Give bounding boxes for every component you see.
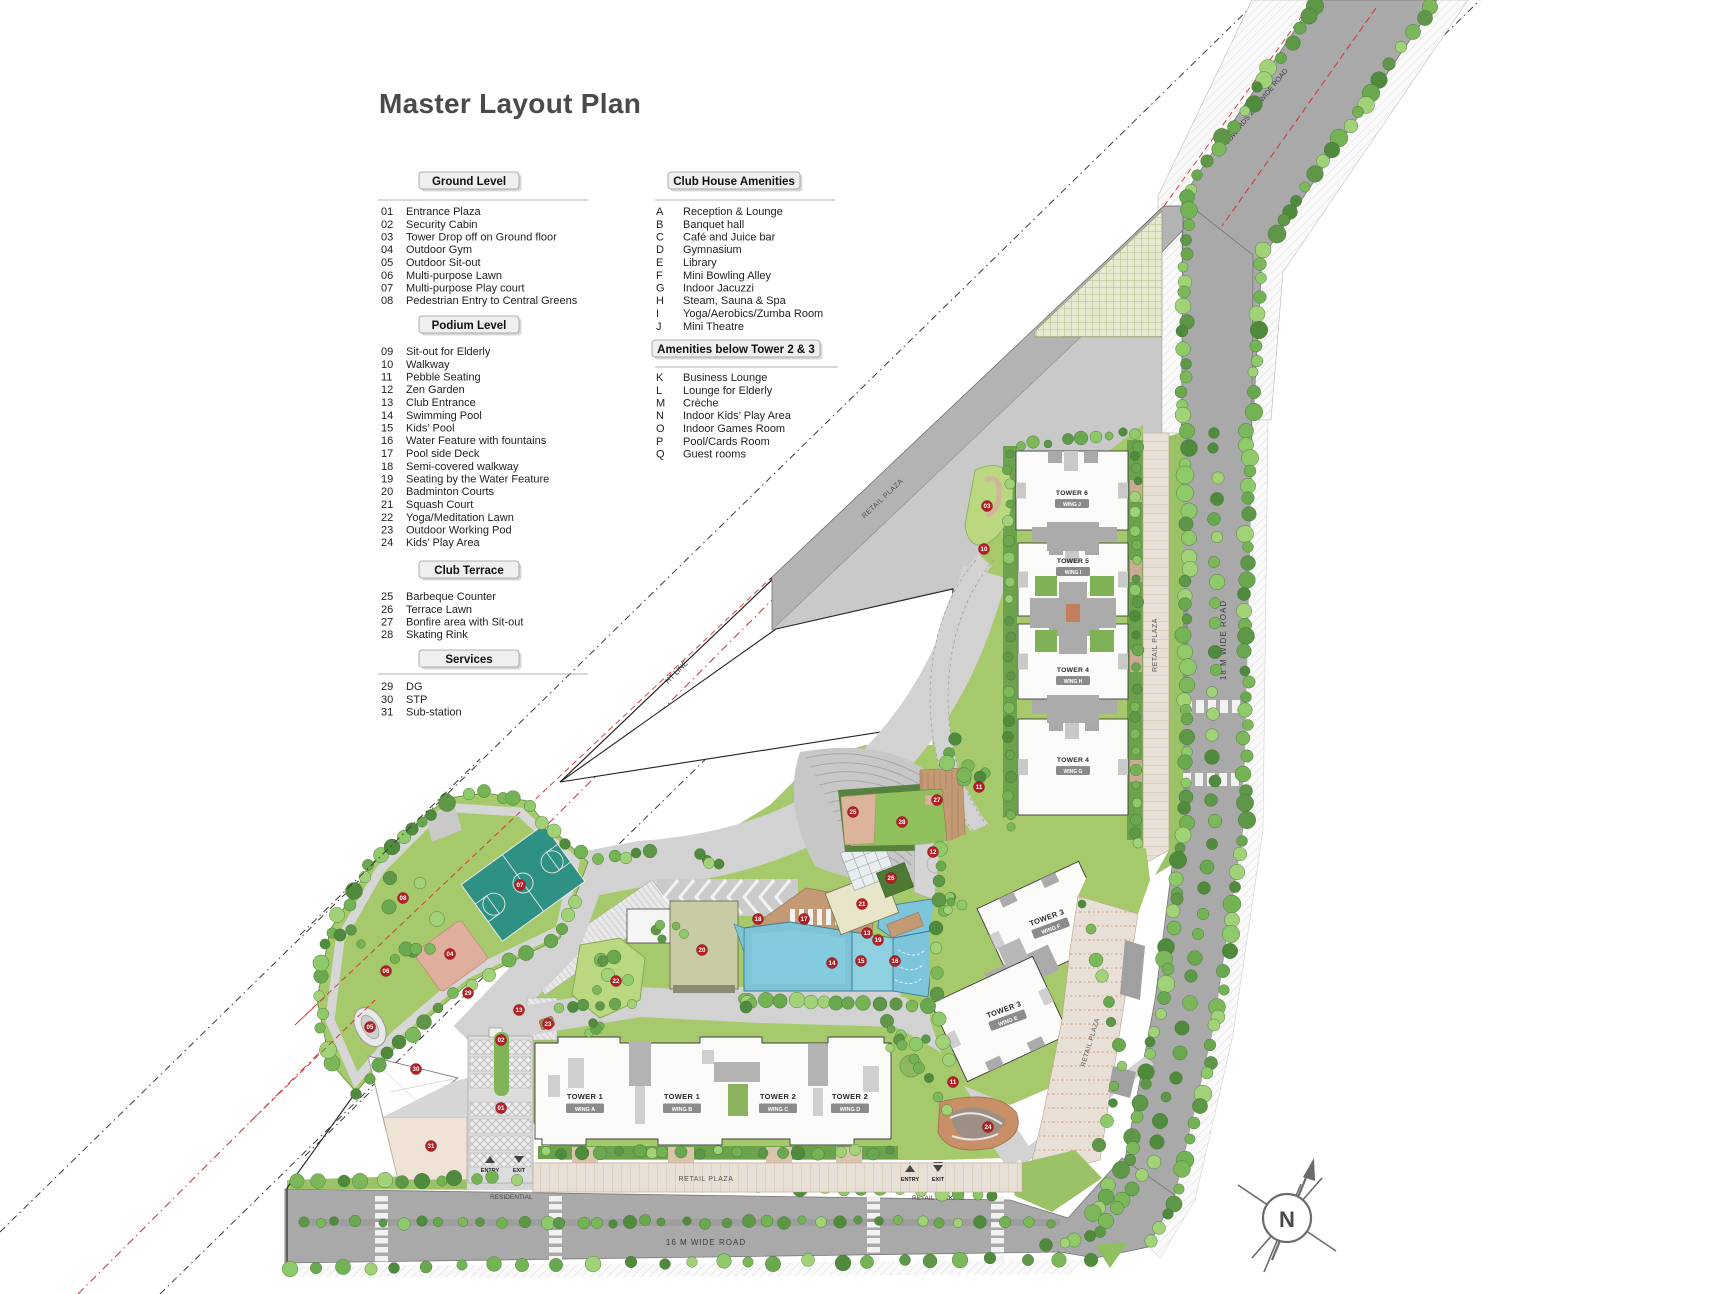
svg-text:Yoga/Meditation Lawn: Yoga/Meditation Lawn [406, 512, 514, 524]
svg-text:27: 27 [934, 797, 941, 804]
svg-text:13: 13 [864, 930, 871, 937]
svg-text:Indoor Kids’ Play Area: Indoor Kids’ Play Area [683, 410, 792, 422]
svg-text:F: F [656, 270, 663, 282]
svg-text:Lounge for Elderly: Lounge for Elderly [683, 385, 773, 397]
svg-text:Business Lounge: Business Lounge [683, 372, 767, 384]
svg-text:05: 05 [367, 1024, 374, 1031]
svg-text:L: L [656, 385, 662, 397]
svg-text:N: N [656, 410, 664, 422]
svg-text:Seating by the Water Feature: Seating by the Water Feature [406, 474, 549, 486]
svg-text:TOWER 2: TOWER 2 [760, 1092, 796, 1101]
svg-text:14: 14 [381, 410, 393, 422]
svg-text:Terrace Lawn: Terrace Lawn [406, 604, 472, 616]
svg-text:STP: STP [406, 694, 427, 706]
svg-text:Podium Level: Podium Level [432, 320, 507, 332]
svg-text:24: 24 [985, 1124, 992, 1131]
svg-text:Walkway: Walkway [406, 359, 450, 371]
svg-text:06: 06 [383, 968, 390, 975]
svg-text:18: 18 [381, 461, 393, 473]
svg-text:Club Terrace: Club Terrace [434, 565, 503, 577]
svg-text:12: 12 [930, 849, 937, 856]
svg-text:Gymnasium: Gymnasium [683, 244, 742, 256]
svg-text:01: 01 [498, 1105, 505, 1112]
svg-text:TOWER 4: TOWER 4 [1057, 757, 1089, 764]
svg-text:11: 11 [381, 372, 392, 384]
svg-text:Kids’ Pool: Kids’ Pool [406, 423, 455, 435]
svg-text:EXIT: EXIT [932, 1177, 945, 1183]
svg-text:30: 30 [381, 694, 393, 706]
svg-text:08: 08 [381, 295, 393, 307]
svg-text:10: 10 [381, 359, 393, 371]
svg-text:Outdoor Working Pod: Outdoor Working Pod [406, 525, 512, 537]
svg-text:Indoor Jacuzzi: Indoor Jacuzzi [683, 283, 754, 295]
svg-text:WING I: WING I [1065, 570, 1082, 576]
svg-text:29: 29 [381, 681, 393, 693]
svg-text:TOWER 6: TOWER 6 [1056, 490, 1088, 497]
svg-text:01: 01 [381, 206, 393, 218]
svg-text:TOWER 4: TOWER 4 [1057, 667, 1089, 674]
svg-text:04: 04 [447, 951, 454, 958]
svg-text:23: 23 [381, 525, 393, 537]
svg-text:08: 08 [400, 895, 407, 902]
svg-text:19: 19 [381, 474, 393, 486]
svg-text:13: 13 [381, 397, 393, 409]
svg-text:WING J: WING J [1063, 502, 1081, 508]
svg-text:C: C [656, 232, 664, 244]
svg-text:Club Entrance: Club Entrance [406, 397, 476, 409]
svg-text:25: 25 [381, 591, 393, 603]
svg-text:ENTRY: ENTRY [901, 1177, 920, 1183]
svg-text:30: 30 [413, 1066, 420, 1073]
svg-text:02: 02 [498, 1037, 505, 1044]
svg-text:Pool/Cards Room: Pool/Cards Room [683, 436, 770, 448]
svg-text:O: O [656, 423, 665, 435]
svg-text:Outdoor Gym: Outdoor Gym [406, 244, 472, 256]
svg-text:D: D [656, 244, 664, 256]
svg-text:31: 31 [381, 707, 393, 719]
svg-text:M: M [656, 398, 665, 410]
svg-text:WING D: WING D [840, 1107, 860, 1113]
svg-text:RETAIL PLAZA: RETAIL PLAZA [678, 1176, 733, 1183]
svg-text:20: 20 [381, 486, 393, 498]
svg-text:WING B: WING B [672, 1107, 692, 1113]
svg-text:16: 16 [892, 958, 899, 965]
svg-text:J: J [656, 321, 662, 333]
svg-text:28: 28 [381, 629, 393, 641]
svg-text:25: 25 [850, 809, 857, 816]
svg-text:12: 12 [381, 384, 393, 396]
svg-text:I: I [656, 308, 659, 320]
svg-text:Outdoor Sit-out: Outdoor Sit-out [406, 257, 481, 269]
svg-text:WING G: WING G [1064, 769, 1083, 775]
svg-text:16 M WIDE ROAD: 16 M WIDE ROAD [666, 1238, 746, 1247]
svg-text:27: 27 [381, 617, 393, 629]
svg-text:07: 07 [517, 882, 524, 889]
svg-text:16: 16 [381, 435, 393, 447]
svg-text:21: 21 [859, 901, 866, 908]
svg-text:Sit-out for Elderly: Sit-out for Elderly [406, 346, 491, 358]
svg-text:Amenities below Tower 2 & 3: Amenities below Tower 2 & 3 [657, 344, 815, 356]
svg-text:17: 17 [801, 916, 808, 923]
svg-text:13: 13 [516, 1007, 523, 1014]
svg-text:18: 18 [755, 916, 762, 923]
svg-text:06: 06 [381, 270, 393, 282]
svg-text:11: 11 [950, 1079, 957, 1086]
svg-text:Master Layout Plan: Master Layout Plan [379, 88, 641, 119]
svg-text:H: H [656, 295, 664, 307]
svg-text:29: 29 [465, 990, 472, 997]
svg-text:Security Cabin: Security Cabin [406, 219, 478, 231]
svg-text:Pebble Seating: Pebble Seating [406, 372, 481, 384]
svg-text:Yoga/Aerobics/Zumba Room: Yoga/Aerobics/Zumba Room [683, 308, 823, 320]
svg-text:K: K [656, 372, 664, 384]
svg-text:Q: Q [656, 449, 665, 461]
svg-text:20: 20 [699, 947, 706, 954]
svg-text:14: 14 [829, 960, 836, 967]
svg-text:N: N [1279, 1207, 1295, 1232]
svg-text:22: 22 [381, 512, 393, 524]
svg-text:WING C: WING C [768, 1107, 788, 1113]
svg-text:Mini Theatre: Mini Theatre [683, 321, 744, 333]
svg-text:Multi-purpose Lawn: Multi-purpose Lawn [406, 270, 502, 282]
svg-text:23: 23 [545, 1021, 552, 1028]
svg-text:07: 07 [381, 283, 393, 295]
svg-text:03: 03 [984, 503, 991, 510]
svg-text:21: 21 [381, 499, 393, 511]
svg-text:Guest rooms: Guest rooms [683, 449, 746, 461]
svg-text:TOWER 1: TOWER 1 [664, 1092, 700, 1101]
svg-text:RETAIL PLAZA: RETAIL PLAZA [1152, 618, 1159, 672]
svg-text:Steam, Sauna & Spa: Steam, Sauna & Spa [683, 295, 787, 307]
svg-text:Barbeque Counter: Barbeque Counter [406, 591, 496, 603]
svg-text:26: 26 [381, 604, 393, 616]
svg-text:B: B [656, 219, 663, 231]
svg-text:10: 10 [981, 546, 988, 553]
svg-text:04: 04 [381, 244, 393, 256]
svg-text:Pedestrian Entry to Central Gr: Pedestrian Entry to Central Greens [406, 295, 578, 307]
svg-text:22: 22 [613, 978, 620, 985]
svg-text:Badminton Courts: Badminton Courts [406, 486, 495, 498]
svg-text:WING H: WING H [1064, 679, 1083, 685]
svg-text:15: 15 [381, 423, 393, 435]
svg-text:Kids’ Play Area: Kids’ Play Area [406, 537, 480, 549]
svg-text:31: 31 [428, 1143, 435, 1150]
svg-text:A: A [656, 206, 664, 218]
svg-text:Café and Juice bar: Café and Juice bar [683, 232, 776, 244]
svg-text:Entrance Plaza: Entrance Plaza [406, 206, 481, 218]
svg-text:09: 09 [381, 346, 393, 358]
svg-text:Club House Amenities: Club House Amenities [673, 176, 795, 188]
svg-text:Pool side Deck: Pool side Deck [406, 448, 480, 460]
svg-text:Reception & Lounge: Reception & Lounge [683, 206, 783, 218]
svg-text:TOWER 1: TOWER 1 [567, 1092, 603, 1101]
svg-text:17: 17 [381, 448, 393, 460]
svg-text:WING A: WING A [575, 1107, 595, 1113]
svg-text:Mini Bowling Alley: Mini Bowling Alley [683, 270, 772, 282]
svg-text:Tower Drop off on Ground floor: Tower Drop off on Ground floor [406, 232, 557, 244]
svg-text:24: 24 [381, 537, 393, 549]
svg-text:DG: DG [406, 681, 423, 693]
svg-text:03: 03 [381, 232, 393, 244]
svg-text:19: 19 [875, 937, 882, 944]
svg-text:Crèche: Crèche [683, 398, 718, 410]
svg-text:EXIT: EXIT [513, 1168, 526, 1174]
svg-text:P: P [656, 436, 663, 448]
svg-text:11: 11 [976, 784, 983, 791]
svg-text:02: 02 [381, 219, 393, 231]
svg-text:26: 26 [888, 875, 895, 882]
svg-text:Squash Court: Squash Court [406, 499, 473, 511]
svg-text:Banquet hall: Banquet hall [683, 219, 744, 231]
svg-text:Semi-covered walkway: Semi-covered walkway [406, 461, 519, 473]
svg-text:28: 28 [899, 819, 906, 826]
svg-text:RESIDENTIAL: RESIDENTIAL [490, 1194, 533, 1201]
svg-text:G: G [656, 283, 665, 295]
svg-text:Bonfire area with Sit-out: Bonfire area with Sit-out [406, 617, 523, 629]
svg-text:15: 15 [858, 958, 865, 965]
svg-text:TOWER 2: TOWER 2 [832, 1092, 868, 1101]
svg-text:Ground Level: Ground Level [432, 176, 506, 188]
svg-text:Library: Library [683, 257, 717, 269]
svg-text:E: E [656, 257, 663, 269]
svg-text:Sub-station: Sub-station [406, 707, 462, 719]
svg-text:Swimming Pool: Swimming Pool [406, 410, 482, 422]
svg-text:TOWER 5: TOWER 5 [1057, 558, 1089, 565]
svg-text:Indoor Games Room: Indoor Games Room [683, 423, 785, 435]
svg-text:Water Feature with fountains: Water Feature with fountains [406, 435, 547, 447]
svg-text:Skating Rink: Skating Rink [406, 629, 468, 641]
svg-text:Services: Services [445, 654, 492, 666]
svg-text:05: 05 [381, 257, 393, 269]
svg-text:Multi-purpose Play court: Multi-purpose Play court [406, 283, 525, 295]
svg-text:Zen Garden: Zen Garden [406, 384, 465, 396]
